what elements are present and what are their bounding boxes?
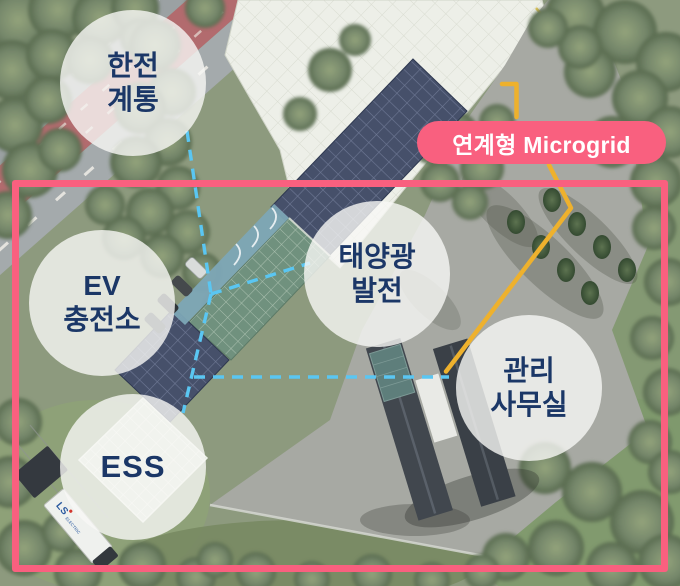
- bubble-ev-label: EV 충전소: [63, 269, 140, 337]
- bubble-ev-line2: 충전소: [63, 303, 140, 337]
- microgrid-diagram: LS ELECTRIC: [0, 0, 680, 586]
- bubble-kepco-label: 한전 계통: [107, 49, 159, 117]
- bubble-solar-label: 태양광 발전: [338, 240, 415, 308]
- bubble-solar-power: 태양광 발전: [304, 201, 450, 347]
- bubble-ess-label: ESS: [100, 448, 165, 486]
- bubble-office-label: 관리 사무실: [490, 354, 567, 422]
- bubble-office-line2: 사무실: [490, 388, 567, 422]
- bubble-solar-line2: 발전: [338, 274, 415, 308]
- bubble-kepco-line2: 계통: [107, 83, 159, 117]
- bubble-solar-line1: 태양광: [338, 240, 415, 274]
- bubble-ess-line1: ESS: [100, 448, 165, 486]
- banner-label: 연계형 Microgrid: [452, 126, 631, 160]
- bubble-kepco-line1: 한전: [107, 49, 159, 83]
- microgrid-banner: 연계형 Microgrid: [417, 121, 666, 164]
- bubble-ess: ESS: [60, 394, 206, 540]
- bubble-ev-line1: EV: [63, 269, 140, 303]
- bubble-office-line1: 관리: [490, 354, 567, 388]
- bubble-management-office: 관리 사무실: [456, 315, 602, 461]
- bubble-kepco: 한전 계통: [60, 10, 206, 156]
- bubble-ev-charging: EV 충전소: [29, 230, 175, 376]
- power-cable-line-top: [502, 84, 517, 117]
